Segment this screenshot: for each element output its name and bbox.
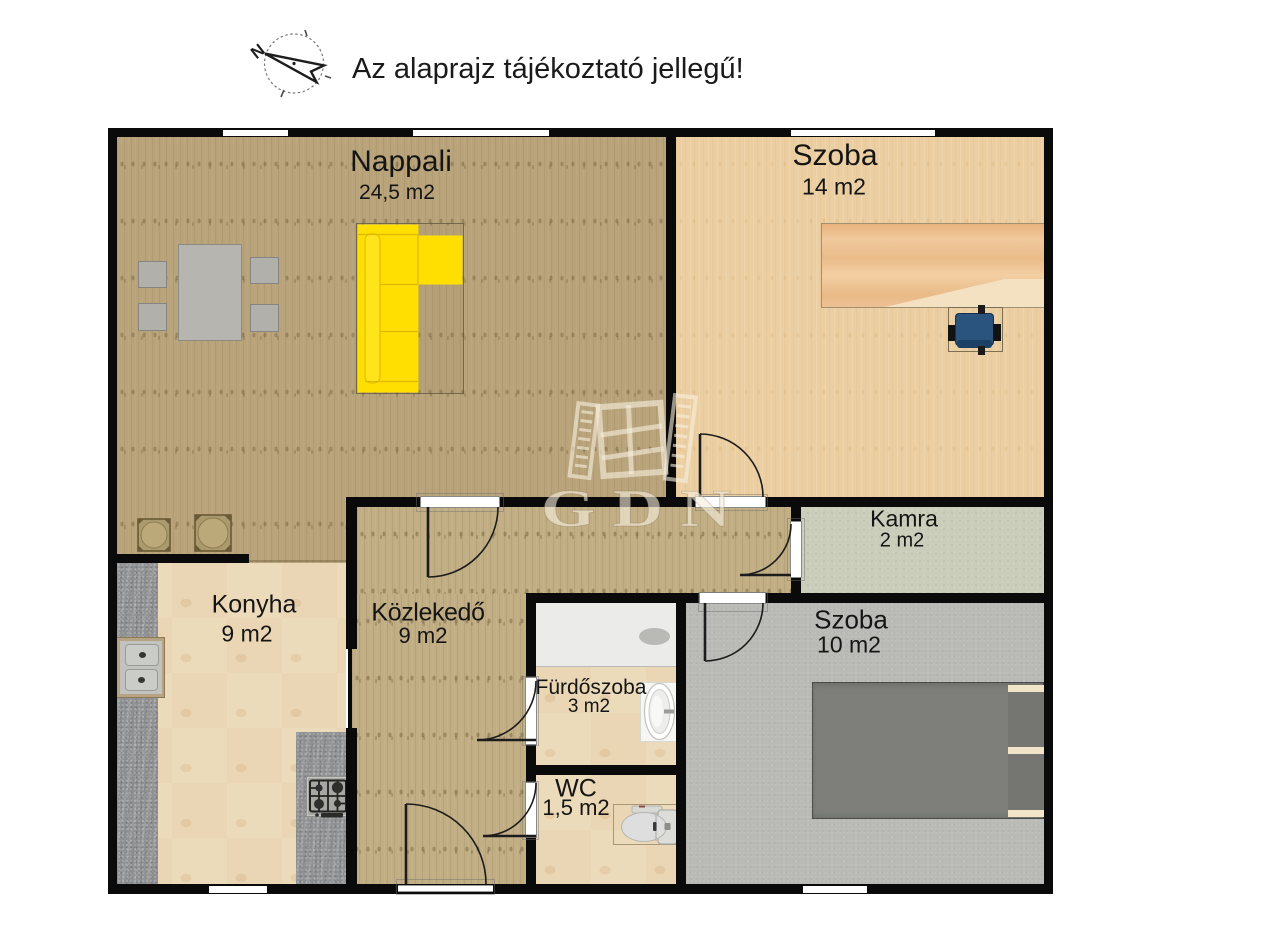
svg-text:GDN: GDN [541,480,748,538]
